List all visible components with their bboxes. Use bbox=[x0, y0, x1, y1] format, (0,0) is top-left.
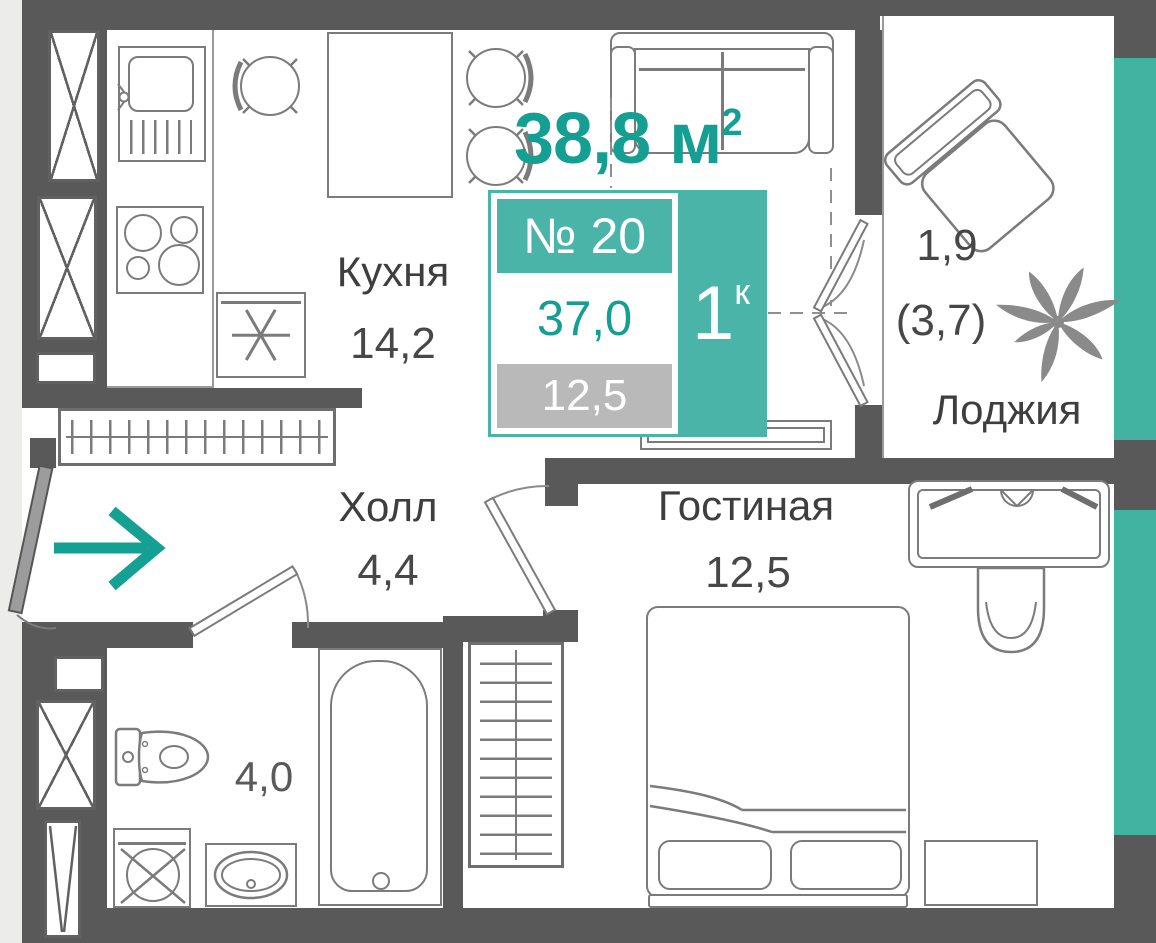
wall-segment bbox=[292, 622, 445, 648]
total-area-unit: м bbox=[669, 99, 721, 179]
ventilation-shaft-icon bbox=[48, 30, 100, 182]
bathroom-sink-icon bbox=[205, 843, 297, 907]
loggia-area-coef-label: (3,7) bbox=[896, 296, 986, 346]
dining-table-icon bbox=[327, 32, 453, 198]
toilet-icon bbox=[116, 729, 208, 785]
apartment-type-badge: 1к bbox=[678, 193, 764, 434]
wall-segment bbox=[22, 0, 880, 30]
kitchen-area-label: 14,2 bbox=[350, 319, 436, 369]
total-area-value: 38,8 bbox=[514, 99, 650, 179]
loggia-name-label: Лоджия bbox=[933, 386, 1082, 434]
fridge-icon bbox=[216, 292, 306, 378]
desk-icon bbox=[908, 480, 1110, 568]
pillow bbox=[790, 840, 902, 890]
loggia-french-doors bbox=[814, 220, 868, 406]
living-area-label: 12,5 bbox=[705, 548, 791, 598]
kitchen-sink-icon bbox=[118, 46, 206, 162]
wall-segment bbox=[855, 0, 1156, 16]
rooms-suffix: к bbox=[734, 271, 750, 313]
shaft-niche bbox=[44, 820, 81, 938]
wall-segment bbox=[22, 388, 362, 408]
facade-stripe bbox=[1114, 58, 1156, 440]
bathtub-icon bbox=[318, 648, 442, 906]
nightstand-icon bbox=[924, 840, 1038, 906]
rooms-count: 1 bbox=[692, 276, 734, 352]
entrance-direction-arrow-icon bbox=[54, 511, 157, 586]
ventilation-shaft-icon bbox=[36, 700, 96, 810]
wall-segment bbox=[1114, 16, 1156, 60]
wall-segment bbox=[1114, 440, 1156, 510]
desk-chair-icon bbox=[978, 568, 1044, 652]
wall-segment bbox=[1114, 835, 1156, 943]
stove-icon bbox=[116, 206, 204, 294]
washing-machine-icon bbox=[113, 828, 191, 908]
outside-strip bbox=[0, 0, 22, 943]
apartment-area-value: 37,0 bbox=[497, 279, 672, 358]
apartment-number-badge: № 20 bbox=[497, 199, 672, 273]
apartment-info-card[interactable]: № 20 37,0 12,5 1к bbox=[488, 190, 767, 437]
chair-icon bbox=[240, 56, 300, 116]
kitchen-name-label: Кухня bbox=[337, 248, 449, 296]
wall-segment bbox=[855, 30, 882, 215]
wall-segment bbox=[105, 908, 1114, 943]
shaft-niche bbox=[36, 352, 96, 384]
card-left-column: № 20 37,0 12,5 bbox=[491, 193, 678, 434]
wardrobe-icon bbox=[468, 642, 564, 868]
apartment-reduced-area-badge: 12,5 bbox=[497, 364, 672, 428]
living-name-label: Гостиная bbox=[658, 482, 834, 530]
wall-segment bbox=[443, 616, 463, 908]
facade-stripe bbox=[1114, 510, 1156, 835]
hall-name-label: Холл bbox=[339, 483, 438, 531]
bathroom-door bbox=[190, 566, 308, 636]
total-area-label: 38,8 м2 bbox=[514, 98, 742, 180]
total-area-sup: 2 bbox=[721, 102, 741, 144]
wall-segment bbox=[30, 438, 56, 468]
wall-segment bbox=[105, 622, 193, 648]
hall-area-label: 4,4 bbox=[357, 546, 418, 596]
bathroom-area-label: 4,0 bbox=[235, 753, 293, 801]
pillow bbox=[658, 840, 772, 890]
loggia-area-label: 1,9 bbox=[916, 221, 977, 271]
shaft-niche bbox=[54, 656, 104, 692]
ventilation-shaft-icon bbox=[37, 196, 97, 340]
wall-segment bbox=[543, 610, 578, 642]
floor-plan-canvas: Кухня 14,2 Холл 4,4 Гостиная 12,5 4,0 1,… bbox=[0, 0, 1156, 943]
wardrobe-icon bbox=[58, 408, 336, 466]
